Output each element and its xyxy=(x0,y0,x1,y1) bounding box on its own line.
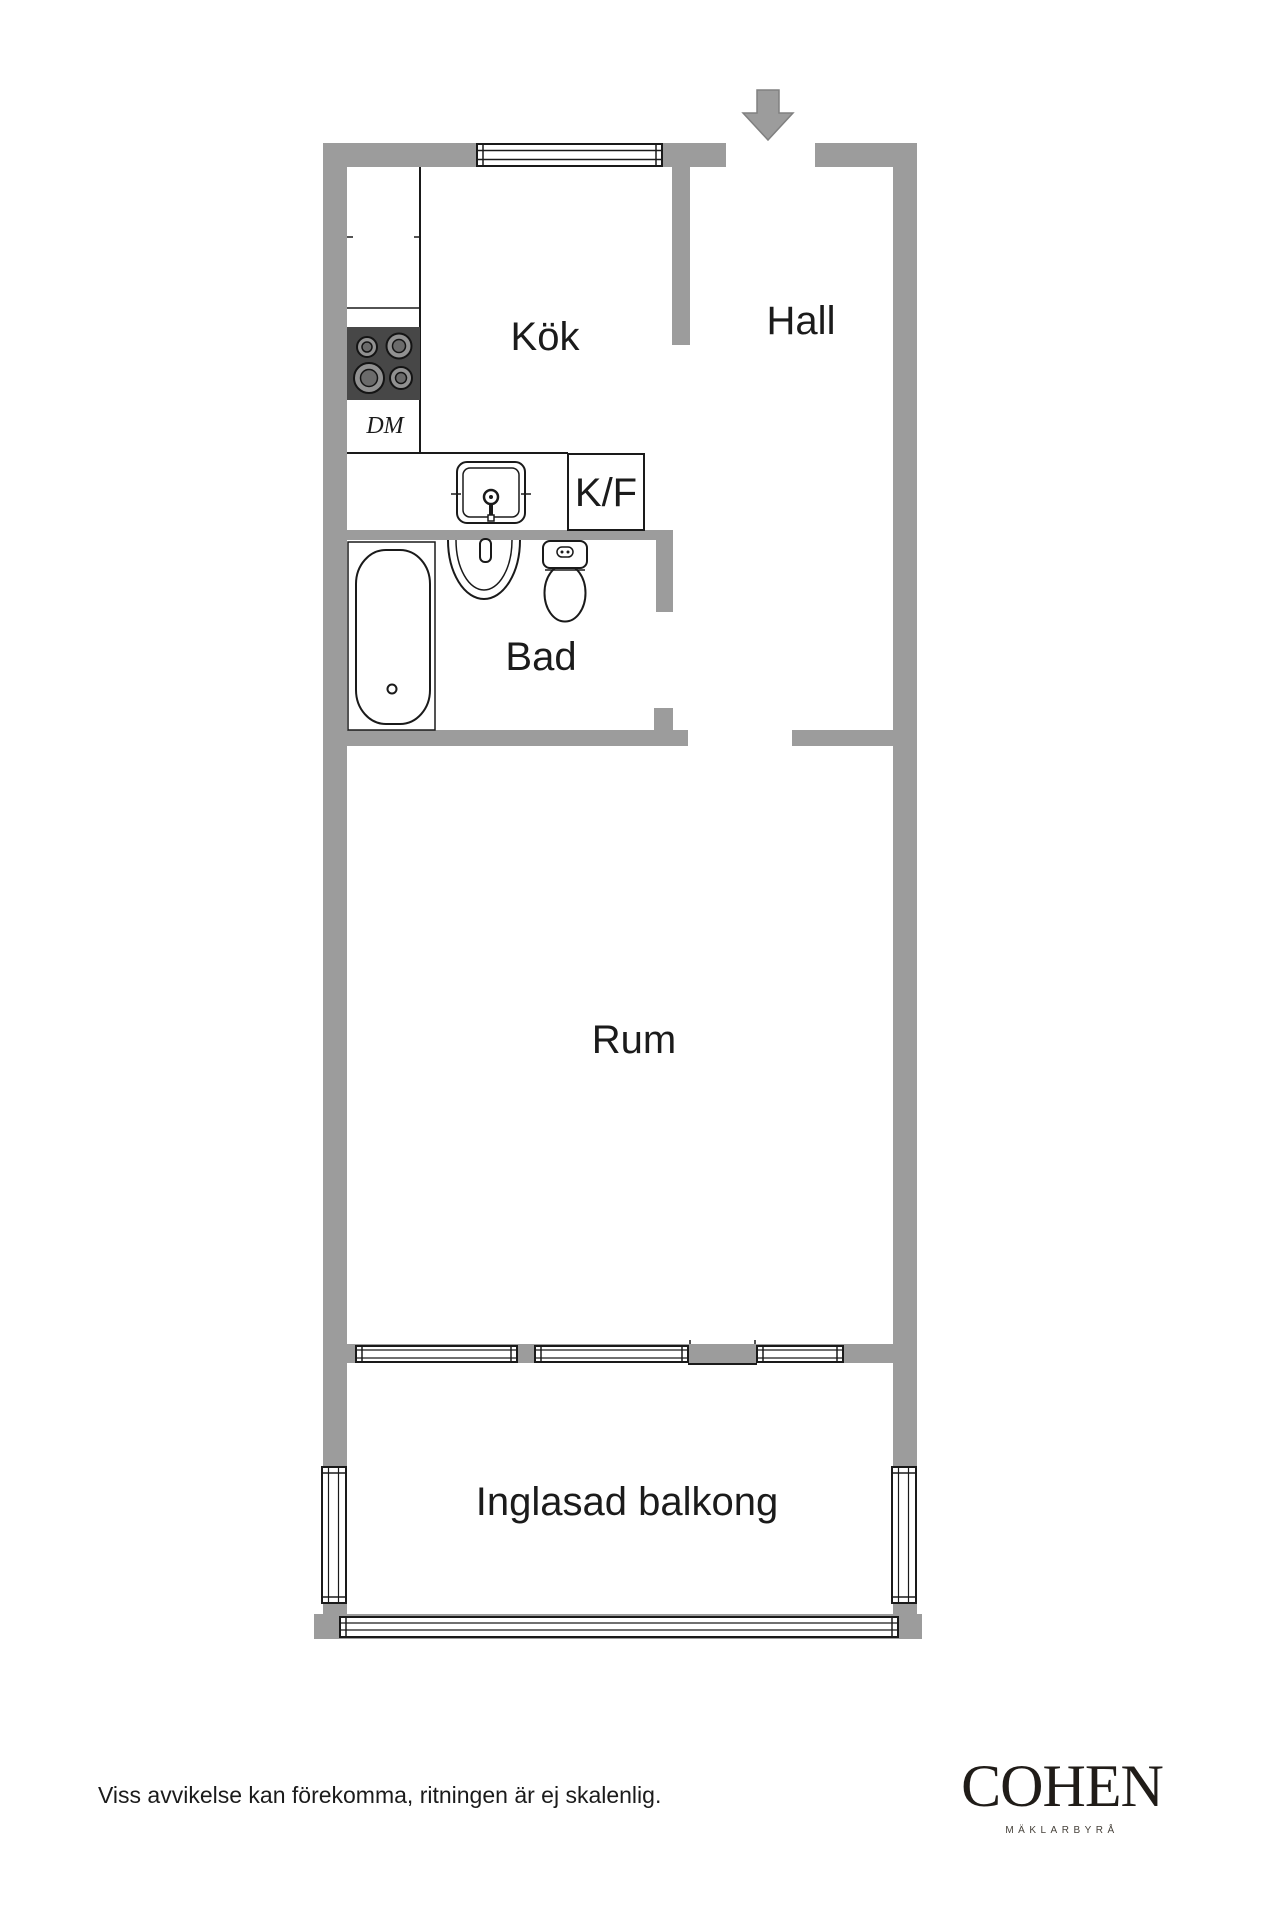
entrance-arrow-icon xyxy=(743,90,793,140)
balcony-window-right xyxy=(892,1467,916,1603)
bathtub xyxy=(348,542,435,730)
balcony-window-bottom xyxy=(340,1617,898,1637)
balcony-front-window-2 xyxy=(535,1346,688,1362)
wall-kitchen-hall xyxy=(672,167,690,345)
appliance-label-dishwasher: DM xyxy=(366,414,403,438)
washbasin xyxy=(448,539,520,599)
kitchen-counter xyxy=(347,167,568,453)
balcony-front-window-3 xyxy=(757,1346,843,1362)
disclaimer-text: Viss avvikelse kan förekomma, ritningen … xyxy=(98,1782,661,1809)
room-label-bathroom: Bad xyxy=(505,637,576,677)
wall-bath-top xyxy=(347,530,673,540)
balcony-front-window-1 xyxy=(356,1346,517,1362)
wall-bath-bottom xyxy=(323,730,688,746)
stove xyxy=(347,327,420,400)
wall-top-mid xyxy=(662,143,726,167)
brand-logo: COHEN MÄKLARBYRÅ xyxy=(961,1756,1163,1836)
floorplan-drawing xyxy=(0,0,1280,1920)
kitchen-window xyxy=(477,144,662,166)
brand-name: COHEN xyxy=(961,1756,1163,1816)
balcony-window-left xyxy=(322,1467,346,1603)
wall-bath-right xyxy=(656,530,673,612)
brand-tagline: MÄKLARBYRÅ xyxy=(961,1825,1163,1836)
appliance-label-fridge-freezer: K/F xyxy=(575,473,637,513)
wall-left-upper xyxy=(323,143,347,1467)
floorplan-page: Kök Hall Bad Rum Inglasad balkong DM K/F… xyxy=(0,0,1280,1920)
room-label-balcony: Inglasad balkong xyxy=(476,1482,778,1522)
room-label-room: Rum xyxy=(592,1020,676,1060)
kitchen-sink xyxy=(451,462,531,523)
wall-right-upper xyxy=(893,143,917,1467)
toilet xyxy=(543,541,587,622)
wall-hall-bottom xyxy=(792,730,895,746)
wall-bath-door-jamb xyxy=(654,708,673,730)
room-label-kitchen: Kök xyxy=(511,317,580,357)
room-label-hall: Hall xyxy=(767,301,836,341)
